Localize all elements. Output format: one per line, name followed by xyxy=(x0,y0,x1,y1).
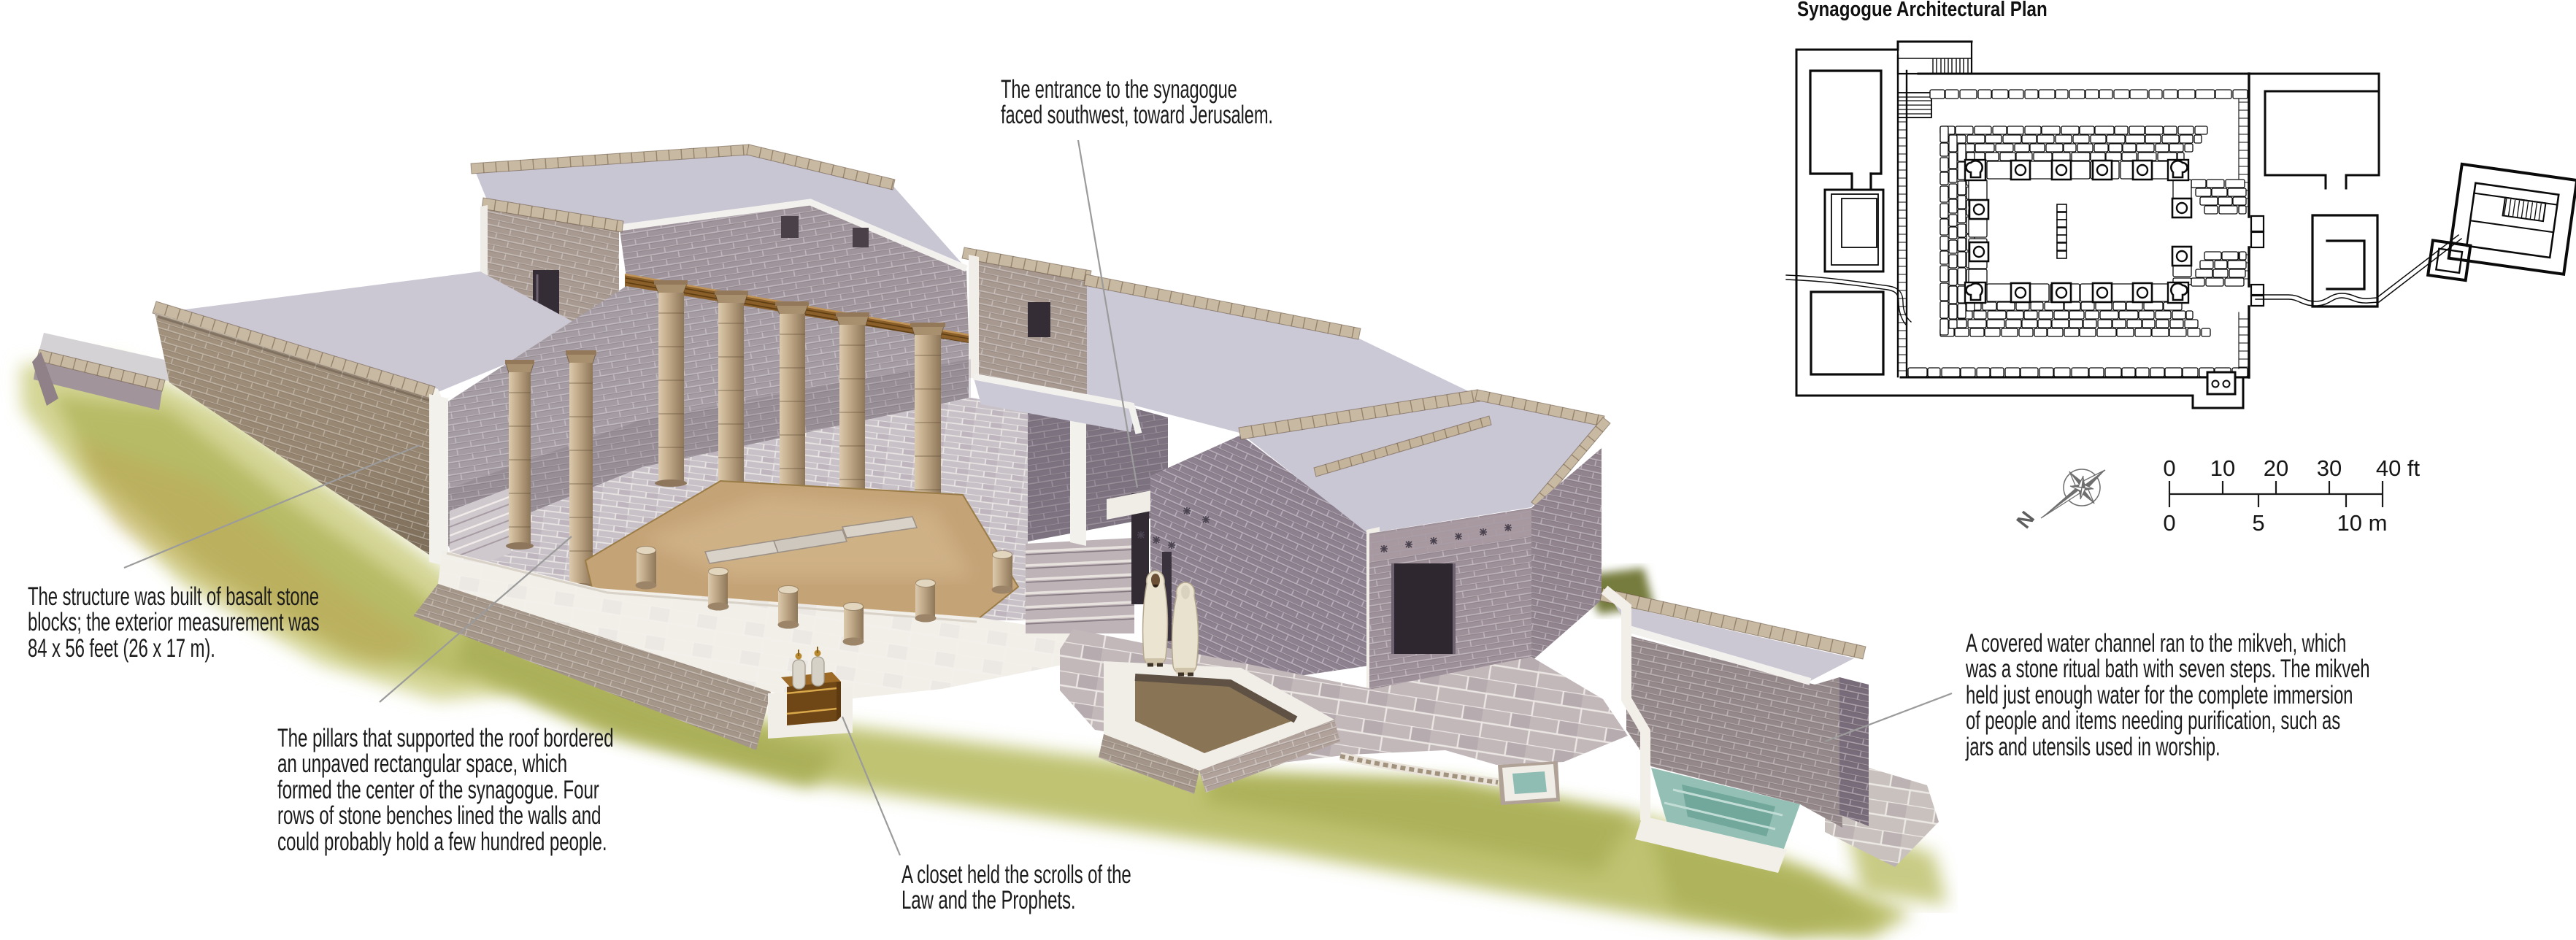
svg-text:10 m: 10 m xyxy=(2337,510,2388,536)
svg-text:30: 30 xyxy=(2317,455,2342,481)
svg-text:10: 10 xyxy=(2210,455,2235,481)
svg-text:0: 0 xyxy=(2163,510,2175,536)
svg-text:40 ft: 40 ft xyxy=(2376,455,2421,481)
svg-text:N: N xyxy=(2012,507,2039,533)
svg-text:20: 20 xyxy=(2264,455,2288,481)
svg-text:0: 0 xyxy=(2163,455,2175,481)
svg-text:5: 5 xyxy=(2252,510,2264,536)
